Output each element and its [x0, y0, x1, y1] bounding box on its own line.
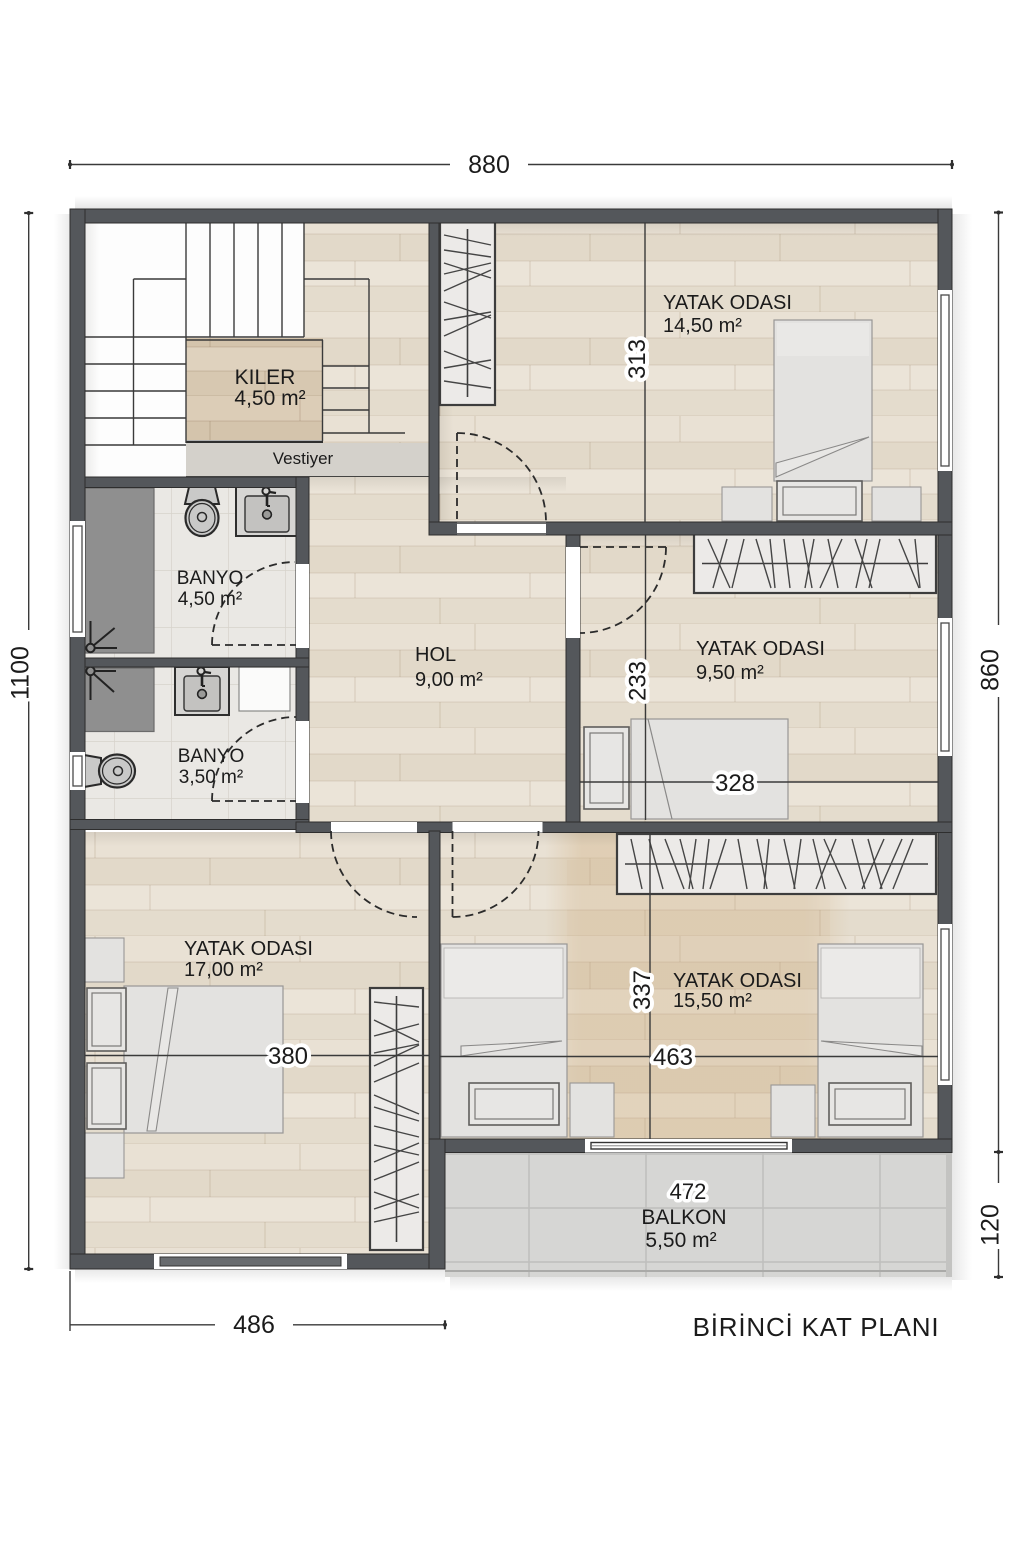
svg-text:17,00 m²: 17,00 m² — [184, 959, 263, 981]
svg-text:120: 120 — [977, 1204, 1005, 1246]
svg-text:9,50 m²: 9,50 m² — [696, 662, 764, 684]
svg-text:233: 233 — [625, 661, 652, 701]
svg-text:HOL: HOL — [415, 644, 456, 666]
svg-text:BANYO: BANYO — [178, 746, 245, 767]
svg-text:9,00 m²: 9,00 m² — [415, 669, 483, 691]
svg-text:472: 472 — [670, 1179, 707, 1204]
svg-text:4,50 m²: 4,50 m² — [178, 589, 242, 610]
svg-text:YATAK ODASI: YATAK ODASI — [184, 938, 313, 960]
svg-text:3,50 m²: 3,50 m² — [179, 767, 243, 788]
svg-text:860: 860 — [977, 649, 1005, 691]
svg-text:14,50 m²: 14,50 m² — [663, 315, 742, 337]
svg-text:880: 880 — [468, 151, 510, 179]
svg-text:5,50 m²: 5,50 m² — [645, 1229, 716, 1252]
svg-text:BALKON: BALKON — [641, 1206, 726, 1229]
svg-text:BANYO: BANYO — [177, 568, 244, 589]
svg-text:463: 463 — [653, 1044, 693, 1071]
svg-text:328: 328 — [715, 770, 755, 797]
svg-text:337: 337 — [629, 970, 656, 1010]
svg-text:YATAK ODASI: YATAK ODASI — [663, 292, 792, 314]
svg-text:BİRİNCİ KAT PLANI: BİRİNCİ KAT PLANI — [693, 1312, 940, 1342]
svg-text:486: 486 — [233, 1311, 275, 1339]
svg-text:15,50 m²: 15,50 m² — [673, 990, 752, 1012]
svg-text:YATAK ODASI: YATAK ODASI — [696, 638, 825, 660]
svg-text:YATAK ODASI: YATAK ODASI — [673, 970, 802, 992]
svg-text:1100: 1100 — [7, 646, 35, 700]
svg-text:4,50 m²: 4,50 m² — [234, 387, 305, 410]
svg-text:Vestiyer: Vestiyer — [273, 449, 334, 468]
svg-text:313: 313 — [624, 339, 651, 379]
svg-text:380: 380 — [268, 1043, 308, 1070]
svg-text:KILER: KILER — [235, 366, 296, 389]
